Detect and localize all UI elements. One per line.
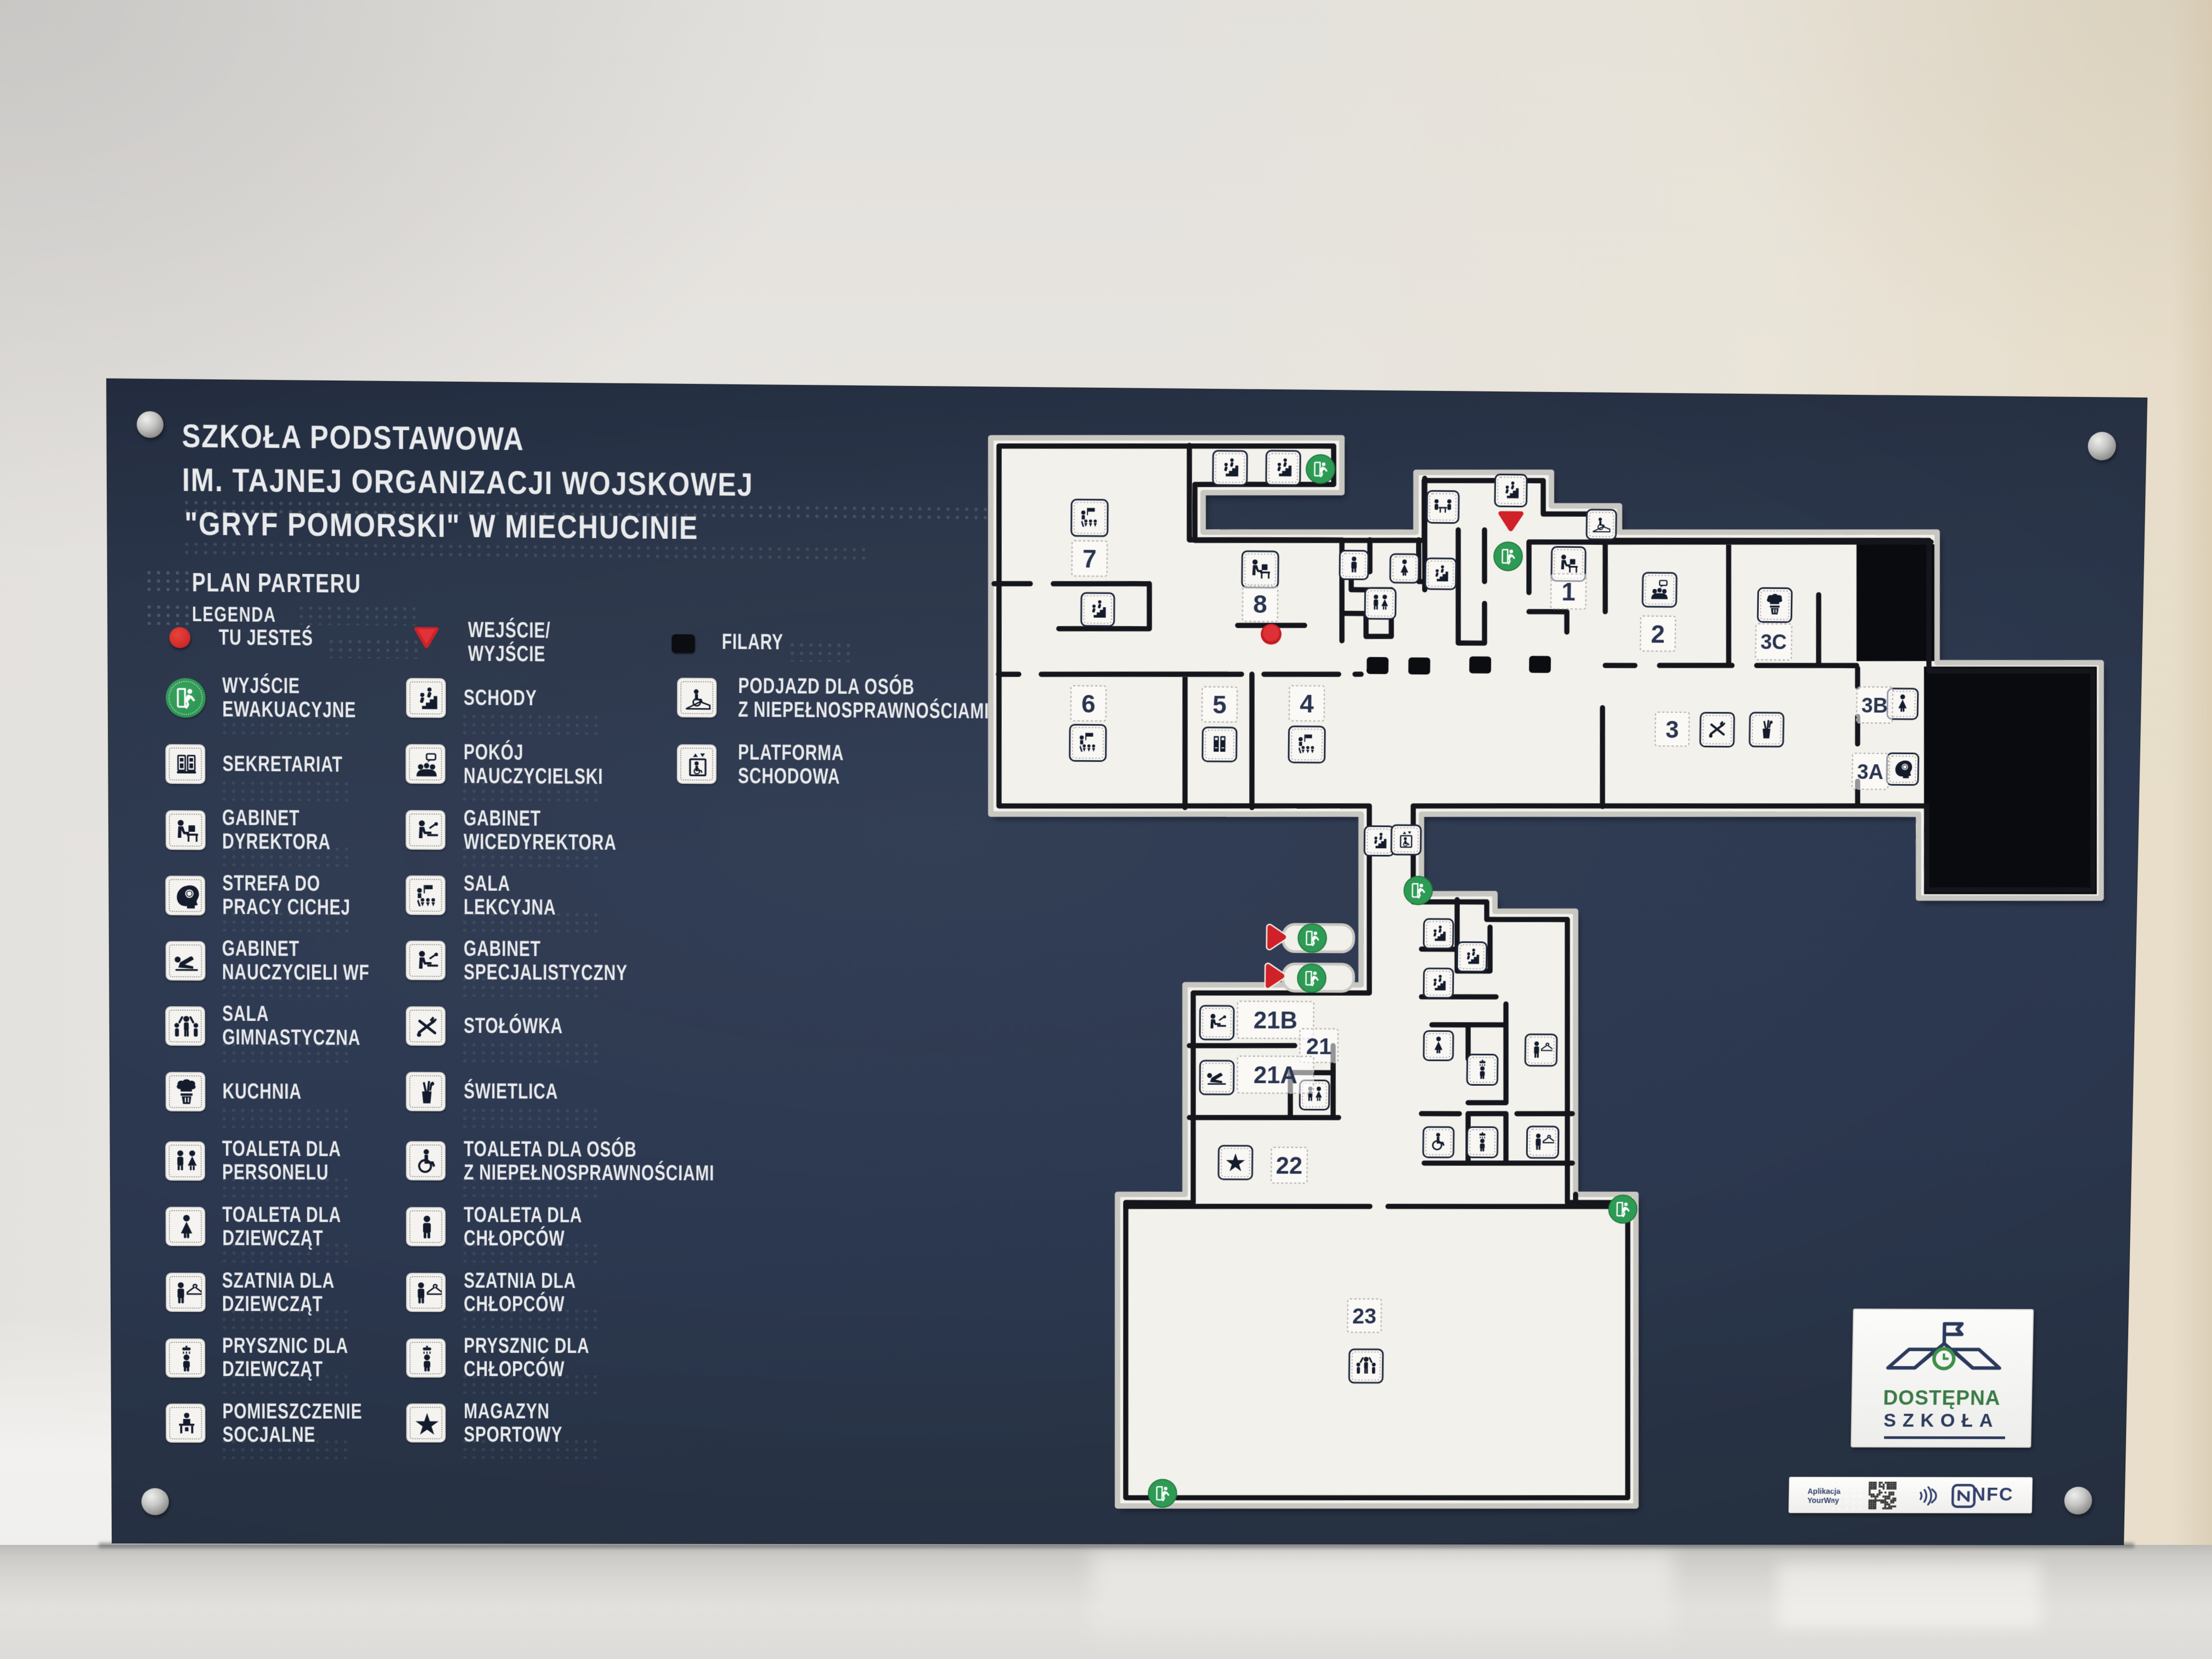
svg-text:21: 21 [1306, 1034, 1332, 1059]
svg-text:5: 5 [1212, 691, 1227, 719]
svg-text:3C: 3C [1760, 631, 1787, 654]
svg-text:23: 23 [1352, 1304, 1376, 1328]
svg-text:3B: 3B [1861, 694, 1888, 717]
svg-text:21B: 21B [1254, 1007, 1297, 1034]
svg-text:21A: 21A [1254, 1062, 1297, 1089]
svg-text:3A: 3A [1857, 760, 1884, 783]
svg-text:6: 6 [1081, 690, 1096, 718]
svg-text:7: 7 [1082, 545, 1097, 573]
svg-text:1: 1 [1561, 578, 1576, 606]
svg-text:3: 3 [1666, 716, 1679, 743]
svg-text:8: 8 [1253, 590, 1267, 618]
svg-text:4: 4 [1300, 690, 1314, 718]
svg-text:22: 22 [1276, 1153, 1303, 1180]
svg-text:2: 2 [1651, 620, 1665, 648]
